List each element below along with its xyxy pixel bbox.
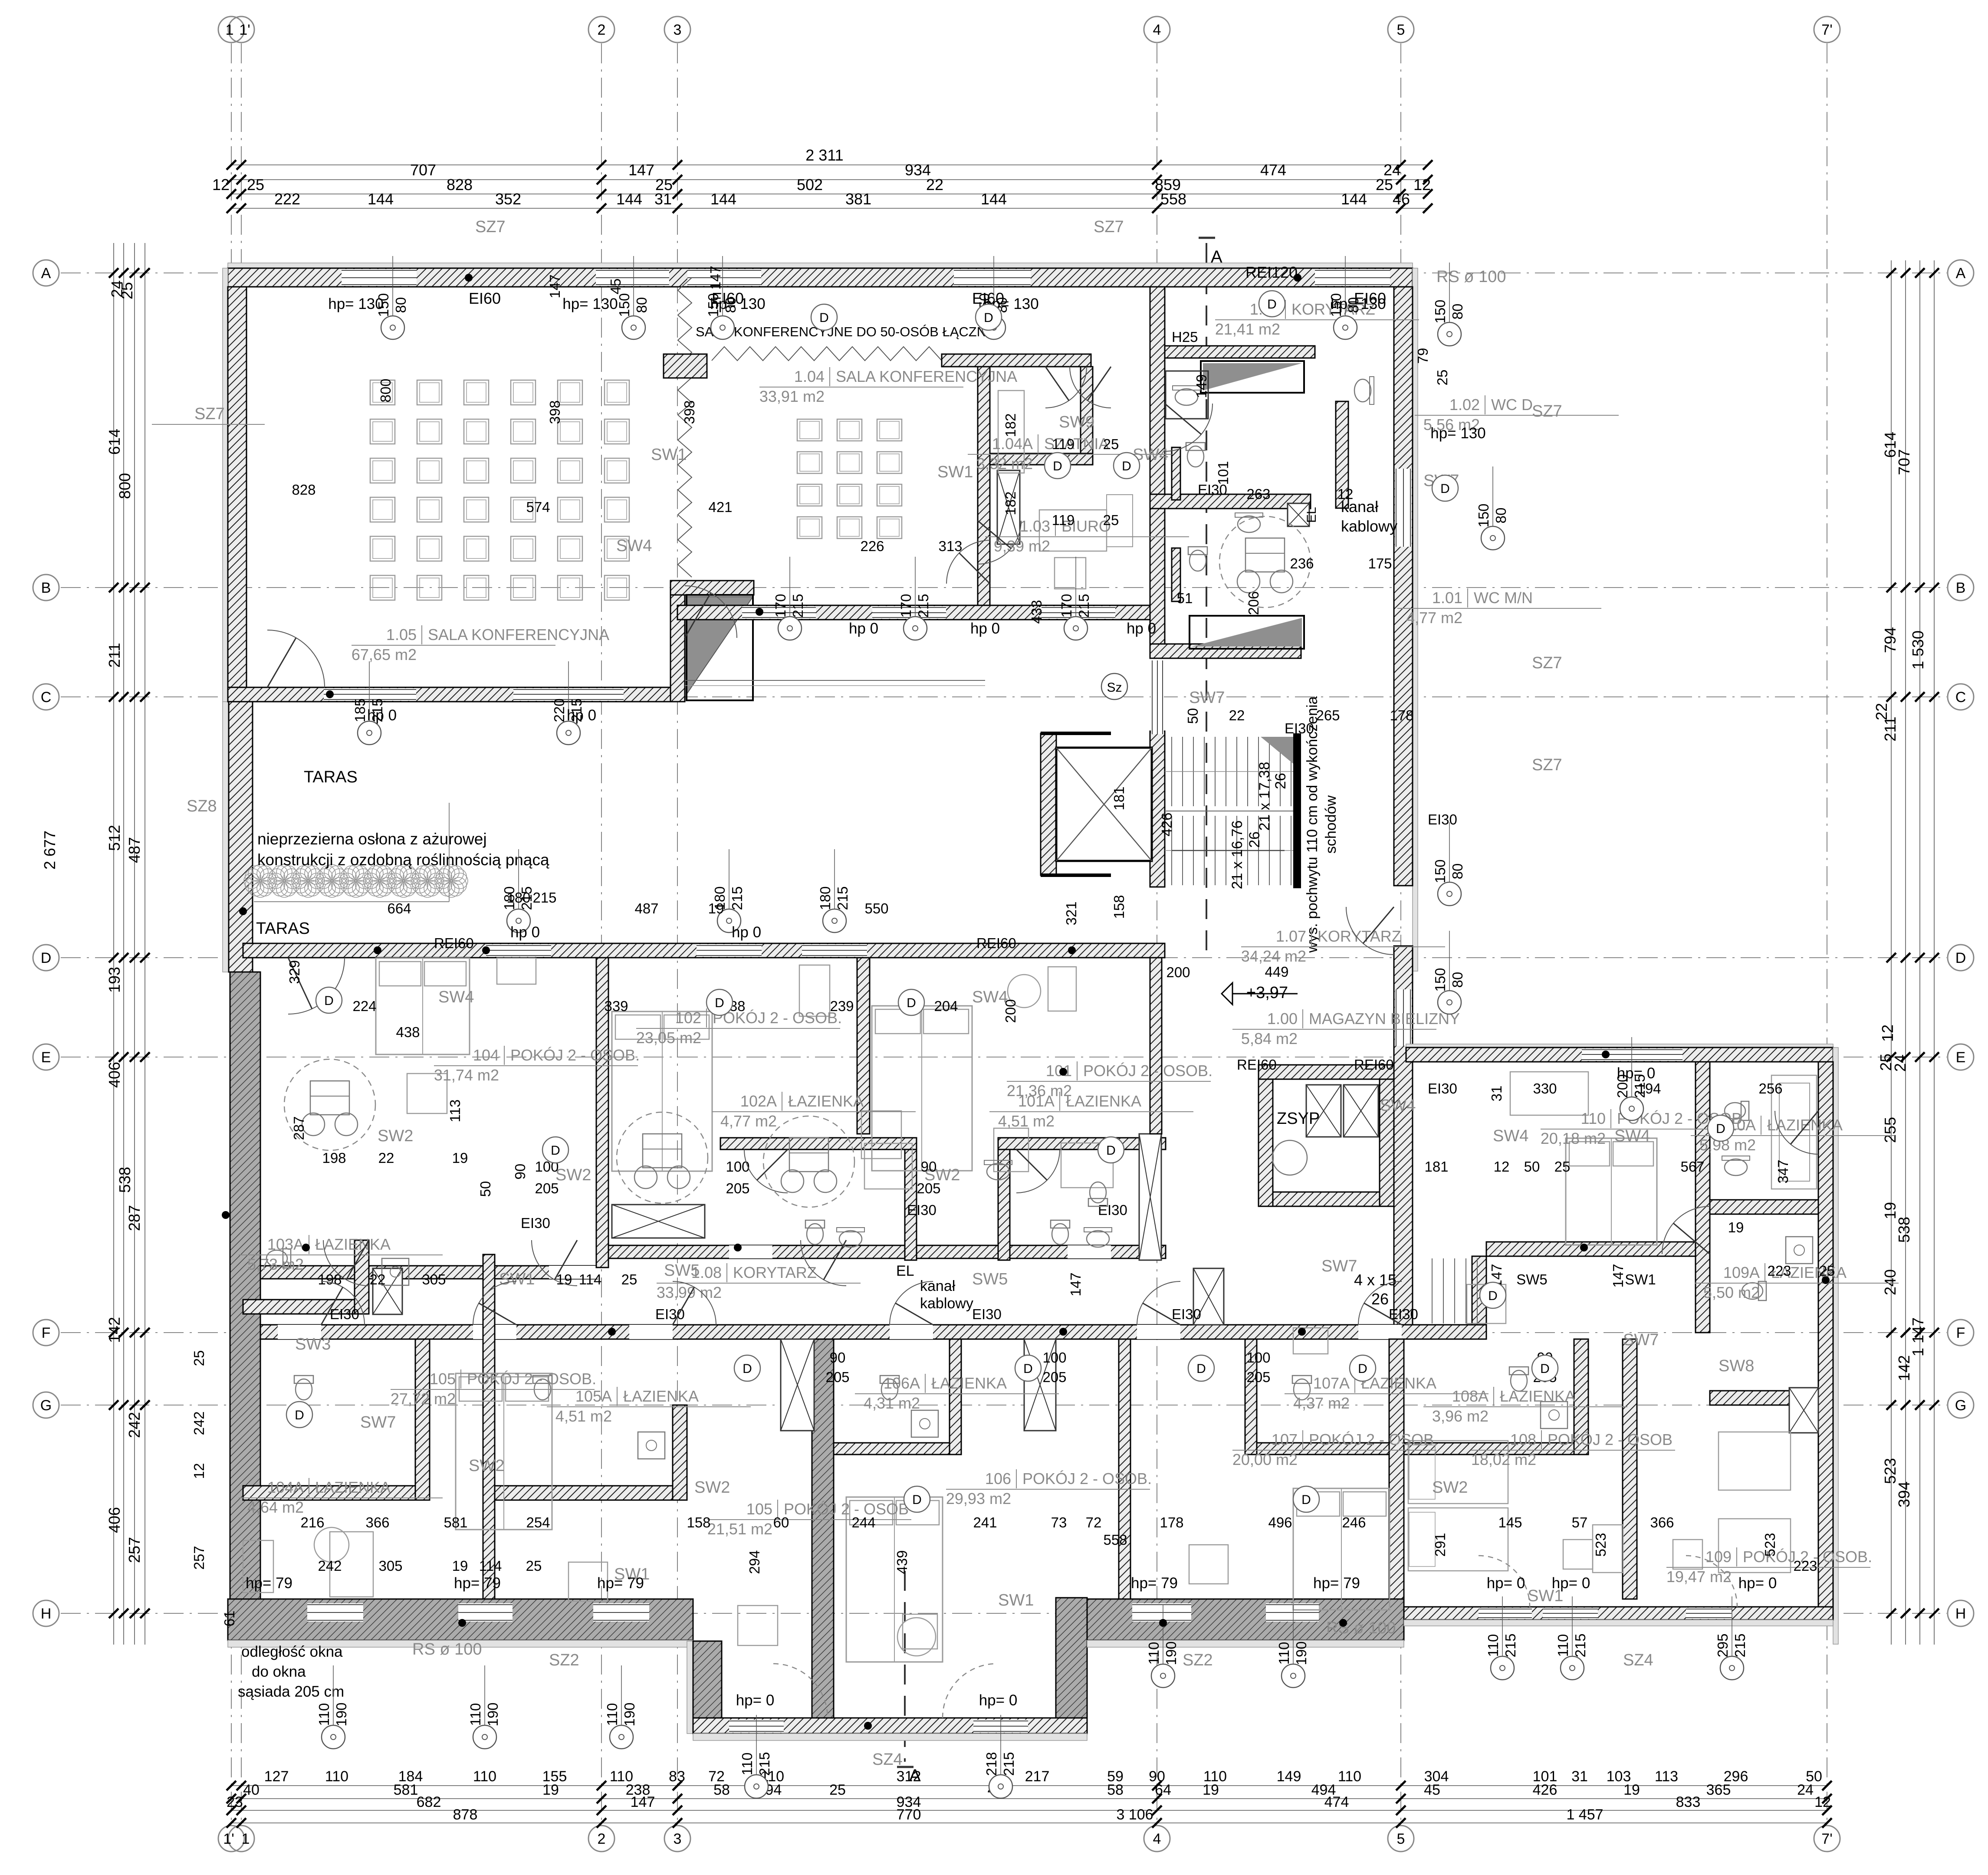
svg-text:hp 0: hp 0 [732,924,761,941]
svg-text:D: D [324,994,334,1008]
svg-text:1: 1 [226,22,234,38]
svg-text:206: 206 [1245,591,1262,615]
svg-text:185: 185 [352,698,368,722]
svg-text:D: D [1358,1362,1367,1376]
svg-text:381: 381 [845,190,871,208]
svg-text:A: A [41,265,51,282]
svg-text:80: 80 [1449,972,1466,988]
svg-text:110: 110 [467,1703,483,1726]
svg-text:828: 828 [292,482,315,498]
svg-text:3,96 m2: 3,96 m2 [1432,1407,1489,1425]
svg-text:7': 7' [1821,22,1832,38]
svg-text:ŁAZIENKA: ŁAZIENKA [1500,1387,1575,1405]
svg-text:144: 144 [981,190,1007,208]
svg-text:25: 25 [1103,436,1119,452]
svg-text:239: 239 [830,998,854,1014]
svg-text:223: 223 [1793,1558,1817,1574]
svg-text:SALA KONFERENCYJNA: SALA KONFERENCYJNA [836,368,1017,385]
svg-text:Sz: Sz [1107,680,1122,695]
svg-text:2: 2 [598,22,606,38]
svg-text:794: 794 [1881,627,1899,653]
svg-text:58: 58 [1107,1782,1124,1798]
svg-text:SZ7: SZ7 [1094,218,1124,236]
svg-text:hp= 130: hp= 130 [1331,296,1386,312]
svg-text:WC D: WC D [1491,396,1533,414]
svg-text:25: 25 [1376,176,1393,194]
svg-text:60: 60 [773,1514,789,1530]
svg-text:64: 64 [1155,1782,1171,1798]
svg-text:hp= 0: hp= 0 [736,1692,775,1709]
svg-text:110: 110 [1581,1110,1606,1127]
svg-text:707: 707 [1895,449,1913,475]
svg-text:110: 110 [1485,1634,1501,1657]
svg-text:149: 149 [1193,374,1209,398]
svg-text:1': 1' [239,22,250,38]
svg-text:SZ7: SZ7 [1532,756,1562,774]
svg-text:hp 0: hp 0 [1127,620,1156,637]
svg-text:190: 190 [333,1702,349,1726]
svg-text:9,39 m2: 9,39 m2 [994,537,1050,555]
svg-text:12: 12 [212,176,230,194]
svg-text:SW1: SW1 [937,463,973,481]
svg-text:18,02 m2: 18,02 m2 [1471,1451,1536,1468]
svg-text:1.00: 1.00 [1267,1010,1298,1028]
svg-text:4: 4 [1153,1831,1161,1847]
svg-text:110: 110 [325,1768,348,1785]
svg-text:114: 114 [479,1558,502,1574]
svg-text:31: 31 [654,190,672,208]
svg-text:33,91 m2: 33,91 m2 [759,387,825,405]
svg-text:SW7: SW7 [1623,1331,1659,1349]
svg-text:80: 80 [1449,304,1466,320]
svg-text:110: 110 [473,1768,496,1785]
svg-text:hp= 0: hp= 0 [1487,1575,1525,1592]
svg-text:200: 200 [1002,999,1019,1023]
svg-text:150: 150 [1432,299,1448,323]
svg-text:305: 305 [422,1271,446,1287]
svg-text:25: 25 [1434,370,1450,386]
svg-text:19: 19 [542,1782,559,1798]
svg-text:406: 406 [105,1062,123,1088]
svg-text:215: 215 [1502,1633,1518,1657]
svg-text:40: 40 [243,1782,260,1798]
svg-text:SZ4: SZ4 [872,1750,903,1769]
svg-text:EI30: EI30 [1285,720,1314,736]
svg-text:366: 366 [1650,1514,1674,1530]
svg-text:D: D [1267,297,1277,312]
svg-text:254: 254 [526,1514,550,1530]
svg-text:POKÓJ 2 - OSOB.: POKÓJ 2 - OSOB. [510,1046,640,1064]
svg-text:226: 226 [860,538,884,554]
svg-text:113: 113 [447,1100,463,1123]
svg-text:682: 682 [417,1794,441,1810]
svg-text:KORYTARZ: KORYTARZ [1318,927,1401,945]
svg-text:RS ø 100: RS ø 100 [1436,268,1506,286]
svg-text:3: 3 [674,22,682,38]
svg-text:POKÓJ 2 - OSOB.: POKÓJ 2 - OSOB. [1022,1470,1152,1488]
svg-text:D: D [907,996,916,1010]
svg-text:SW2: SW2 [694,1478,730,1497]
svg-text:242: 242 [318,1558,342,1574]
svg-text:12: 12 [1413,176,1431,194]
svg-text:182: 182 [1002,491,1019,515]
svg-text:EL: EL [896,1263,914,1279]
svg-text:558: 558 [1160,190,1186,208]
svg-text:170: 170 [772,594,789,617]
svg-text:2: 2 [598,1831,606,1847]
svg-text:F: F [42,1325,51,1341]
svg-text:SW4: SW4 [1614,1127,1650,1145]
svg-text:512: 512 [105,825,123,851]
svg-text:SW2: SW2 [1432,1478,1468,1497]
svg-text:770: 770 [897,1806,921,1823]
svg-text:SALE KONFERENCYJNE DO 50-OSÓ: SALE KONFERENCYJNE DO 50-OSÓB ŁĄCZNIE [696,324,999,339]
svg-text:EI30: EI30 [521,1215,550,1231]
svg-text:SW7: SW7 [360,1413,396,1432]
svg-text:90: 90 [512,1164,528,1180]
svg-text:144: 144 [710,190,736,208]
svg-text:246: 246 [1342,1514,1366,1530]
svg-text:kablowy: kablowy [1341,517,1397,535]
svg-text:21,51 m2: 21,51 m2 [707,1520,772,1538]
svg-text:SZ2: SZ2 [549,1651,579,1669]
svg-text:51: 51 [1177,590,1193,606]
svg-text:nieprzezierna osłona z ażurowe: nieprzezierna osłona z ażurowej [257,830,487,848]
svg-text:175: 175 [1368,555,1392,571]
svg-text:SW5: SW5 [1516,1271,1548,1287]
svg-text:215: 215 [1572,1633,1588,1657]
svg-text:194: 194 [1637,1080,1661,1097]
svg-text:205: 205 [1246,1369,1270,1385]
svg-text:hp 0: hp 0 [970,620,1000,637]
svg-text:D: D [1301,1493,1311,1507]
svg-text:26: 26 [1246,831,1263,848]
svg-text:B: B [41,580,51,596]
svg-text:SW5: SW5 [972,1270,1008,1288]
svg-text:114: 114 [579,1271,602,1287]
svg-text:22: 22 [1229,707,1245,723]
svg-text:D: D [819,311,829,325]
svg-text:POKÓJ 2 - OSOB: POKÓJ 2 - OSOB [1548,1431,1673,1448]
svg-text:107A: 107A [1313,1374,1350,1392]
svg-text:109A: 109A [1723,1264,1760,1281]
svg-text:SW8: SW8 [1719,1357,1754,1375]
svg-text:19: 19 [1881,1202,1899,1219]
svg-text:hp= 0: hp= 0 [1738,1575,1777,1592]
svg-text:550: 550 [864,900,888,916]
svg-text:291: 291 [1432,1533,1448,1556]
svg-text:46: 46 [1393,190,1410,208]
svg-text:19: 19 [1728,1219,1744,1235]
svg-text:23: 23 [227,1794,243,1810]
svg-text:142: 142 [1895,1355,1913,1381]
svg-text:hp= 0: hp= 0 [1552,1575,1590,1592]
svg-text:287: 287 [125,1205,143,1231]
svg-text:2 677: 2 677 [41,831,59,870]
svg-text:294: 294 [746,1550,762,1574]
svg-text:REI60: REI60 [1237,1057,1277,1073]
svg-text:102A: 102A [740,1092,777,1110]
svg-text:4 x 15: 4 x 15 [1354,1271,1397,1289]
svg-text:50: 50 [1185,708,1201,724]
svg-text:487: 487 [125,837,143,863]
svg-text:19: 19 [1203,1782,1219,1798]
svg-text:150: 150 [616,293,632,317]
svg-text:215: 215 [915,594,931,617]
svg-text:EL: EL [1305,507,1319,523]
svg-text:105: 105 [746,1500,772,1518]
svg-text:257: 257 [191,1546,207,1570]
svg-text:EI30: EI30 [1428,811,1457,827]
svg-text:107: 107 [1272,1431,1298,1448]
svg-text:EI30: EI30 [1428,1080,1457,1097]
svg-text:E: E [41,1049,51,1066]
svg-text:D: D [1106,1143,1116,1158]
svg-text:23,05 m2: 23,05 m2 [636,1029,701,1047]
svg-text:25: 25 [247,176,264,194]
svg-text:SW5: SW5 [664,1261,700,1280]
svg-text:5: 5 [1397,1831,1405,1847]
svg-text:19: 19 [452,1558,468,1574]
svg-text:25: 25 [526,1558,542,1574]
svg-text:31: 31 [1571,1768,1588,1785]
svg-text:110: 110 [316,1703,332,1726]
svg-text:61: 61 [221,1611,237,1627]
svg-text:474: 474 [1324,1794,1349,1810]
svg-text:339: 339 [604,998,628,1014]
svg-text:581: 581 [394,1782,418,1798]
svg-text:216: 216 [300,1514,324,1530]
svg-text:449: 449 [1265,964,1288,980]
svg-text:365: 365 [1706,1782,1731,1798]
svg-text:12: 12 [1337,486,1354,502]
svg-text:215: 215 [1076,594,1092,617]
svg-text:105: 105 [430,1370,456,1388]
svg-text:D: D [1440,482,1450,496]
svg-text:105A: 105A [575,1387,612,1405]
svg-text:hp= 0: hp= 0 [1617,1065,1656,1082]
svg-text:45: 45 [608,279,624,295]
svg-text:182: 182 [1002,413,1019,437]
svg-text:SW1: SW1 [651,446,687,464]
svg-text:EI30: EI30 [330,1306,359,1322]
svg-text:SW4: SW4 [616,537,652,555]
svg-text:110: 110 [1555,1634,1571,1657]
svg-text:KORYTARZ: KORYTARZ [733,1264,817,1281]
svg-text:SALA KONFERENCYJNA: SALA KONFERENCYJNA [428,626,609,644]
svg-text:25: 25 [621,1271,637,1287]
svg-text:215: 215 [835,886,851,910]
svg-text:SZ7: SZ7 [194,405,225,423]
svg-text:215: 215 [729,886,745,910]
svg-text:EI30: EI30 [1172,1306,1201,1322]
svg-text:110: 110 [604,1703,620,1726]
svg-text:204: 204 [934,998,958,1014]
svg-text:1.05: 1.05 [386,626,417,644]
svg-text:147: 147 [1610,1264,1626,1287]
svg-text:144: 144 [368,190,394,208]
svg-text:106A: 106A [884,1374,920,1392]
svg-text:SW4: SW4 [1493,1127,1528,1145]
svg-text:POKÓJ 2 - OSOB.: POKÓJ 2 - OSOB. [467,1370,596,1388]
svg-text:25: 25 [191,1350,207,1366]
svg-text:12: 12 [1814,1794,1831,1810]
svg-text:SW1: SW1 [998,1591,1034,1609]
svg-text:12: 12 [191,1463,207,1479]
svg-text:833: 833 [1676,1794,1701,1810]
svg-text:83: 83 [669,1768,685,1785]
svg-text:REI60: REI60 [976,935,1016,951]
svg-text:581: 581 [444,1514,467,1530]
svg-text:1 530: 1 530 [1909,630,1927,670]
svg-text:21,41 m2: 21,41 m2 [1215,320,1280,338]
svg-text:do okna: do okna [252,1663,306,1680]
svg-text:22: 22 [1873,703,1890,720]
svg-text:205: 205 [825,1369,849,1385]
svg-text:21 x 17,38: 21 x 17,38 [1256,762,1273,831]
svg-text:19: 19 [1623,1782,1640,1798]
svg-text:438: 438 [396,1024,420,1040]
svg-text:24: 24 [1797,1782,1814,1798]
svg-text:5,50 m2: 5,50 m2 [1703,1284,1760,1301]
svg-text:190: 190 [621,1702,637,1726]
svg-text:426: 426 [1533,1782,1558,1798]
svg-text:223: 223 [1767,1263,1791,1279]
svg-text:158: 158 [687,1514,710,1530]
svg-text:1.02: 1.02 [1449,396,1480,414]
svg-text:352: 352 [495,190,521,208]
svg-text:ŁAZIENKA: ŁAZIENKA [623,1387,699,1405]
svg-text:178: 178 [1160,1514,1183,1530]
svg-text:12: 12 [1879,1025,1896,1042]
svg-text:1.04: 1.04 [794,368,825,385]
svg-text:SW2: SW2 [378,1127,413,1145]
svg-text:REI60: REI60 [1354,1057,1394,1073]
svg-text:SW7: SW7 [1321,1257,1357,1275]
svg-text:27,72 m2: 27,72 m2 [391,1390,456,1408]
svg-text:215: 215 [532,890,556,906]
svg-text:217: 217 [1025,1768,1050,1785]
svg-text:244: 244 [851,1514,875,1530]
svg-text:102: 102 [675,1009,701,1027]
svg-text:D: D [295,1408,304,1422]
svg-text:G: G [1955,1397,1966,1414]
svg-text:25: 25 [829,1782,846,1798]
svg-text:100: 100 [1246,1350,1270,1366]
svg-text:D: D [1540,1362,1550,1376]
svg-text:1.01: 1.01 [1432,589,1462,607]
svg-text:426: 426 [1159,812,1175,836]
svg-text:104A: 104A [267,1478,304,1496]
svg-text:D: D [551,1143,560,1158]
svg-text:828: 828 [447,176,473,194]
svg-text:347: 347 [1775,1159,1791,1183]
svg-text:G: G [40,1397,52,1414]
svg-text:147: 147 [631,1794,655,1810]
svg-text:236: 236 [1290,555,1314,571]
svg-text:330: 330 [1533,1080,1557,1097]
svg-text:878: 878 [453,1806,478,1823]
svg-text:MAGAZYN BIELIZNY: MAGAZYN BIELIZNY [1309,1010,1460,1028]
svg-text:474: 474 [1260,161,1286,179]
svg-text:113: 113 [1655,1768,1678,1785]
svg-text:295: 295 [1715,1633,1731,1657]
svg-text:sąsiada 205 cm: sąsiada 205 cm [238,1683,344,1700]
svg-text:5: 5 [1397,22,1405,38]
svg-text:558: 558 [1103,1532,1127,1548]
svg-text:142: 142 [105,1317,123,1343]
svg-text:242: 242 [191,1411,207,1435]
svg-text:1 457: 1 457 [1566,1806,1603,1823]
svg-text:22: 22 [378,1150,394,1166]
svg-text:hp 0: hp 0 [367,707,397,724]
svg-text:394: 394 [1895,1481,1913,1507]
svg-text:odległość okna: odległość okna [241,1643,343,1660]
svg-text:158: 158 [1111,895,1127,919]
svg-text:ŁAZIENKA: ŁAZIENKA [931,1374,1007,1392]
svg-text:B: B [1956,580,1966,596]
svg-text:181: 181 [1424,1159,1448,1175]
svg-text:D: D [743,1362,752,1376]
svg-text:19: 19 [708,900,724,916]
svg-text:hp= 79: hp= 79 [1313,1575,1360,1592]
svg-text:108: 108 [1510,1431,1536,1448]
svg-text:421: 421 [708,499,732,515]
svg-text:19: 19 [452,1150,468,1166]
svg-text:7': 7' [1821,1831,1832,1847]
svg-text:567: 567 [1680,1159,1704,1175]
svg-text:50: 50 [477,1181,493,1197]
svg-text:215: 215 [1001,1752,1017,1776]
svg-text:POKÓJ 2 - OSOB: POKÓJ 2 - OSOB [784,1500,909,1518]
svg-text:SW2: SW2 [555,1166,591,1184]
svg-text:398: 398 [681,400,697,424]
svg-text:256: 256 [1758,1080,1782,1097]
svg-text:ŁAZIENKA: ŁAZIENKA [1066,1092,1141,1110]
svg-text:313: 313 [938,538,962,554]
svg-text:4,51 m2: 4,51 m2 [555,1407,612,1425]
svg-text:45: 45 [1424,1782,1440,1798]
svg-text:SZ4: SZ4 [1623,1651,1653,1669]
svg-text:D: D [984,311,993,325]
svg-text:SZ7: SZ7 [1532,654,1562,672]
svg-text:215: 215 [756,1752,772,1776]
svg-text:hp= 79: hp= 79 [454,1575,501,1592]
svg-text:20,18 m2: 20,18 m2 [1541,1130,1606,1147]
svg-text:5,73 m2: 5,73 m2 [247,1255,304,1273]
svg-text:222: 222 [274,190,300,208]
svg-text:67,65 m2: 67,65 m2 [352,646,417,663]
svg-text:109: 109 [1705,1548,1732,1566]
svg-text:205: 205 [1042,1369,1066,1385]
svg-text:E: E [1956,1049,1966,1066]
svg-text:523: 523 [1762,1533,1778,1556]
svg-text:1.03: 1.03 [1020,517,1050,535]
svg-text:EI30: EI30 [655,1306,685,1322]
svg-text:1: 1 [242,1831,250,1847]
svg-text:31: 31 [1489,1086,1505,1102]
svg-text:SZ7: SZ7 [475,218,506,236]
svg-text:D: D [1955,950,1966,966]
svg-text:57: 57 [1572,1514,1588,1530]
svg-text:29,93 m2: 29,93 m2 [946,1490,1011,1507]
svg-text:hp 0: hp 0 [849,620,878,637]
svg-text:496: 496 [1268,1514,1292,1530]
svg-text:240: 240 [1881,1269,1899,1295]
svg-text:487: 487 [634,900,658,916]
svg-text:257: 257 [125,1537,143,1563]
svg-text:hp= 79: hp= 79 [246,1575,292,1592]
